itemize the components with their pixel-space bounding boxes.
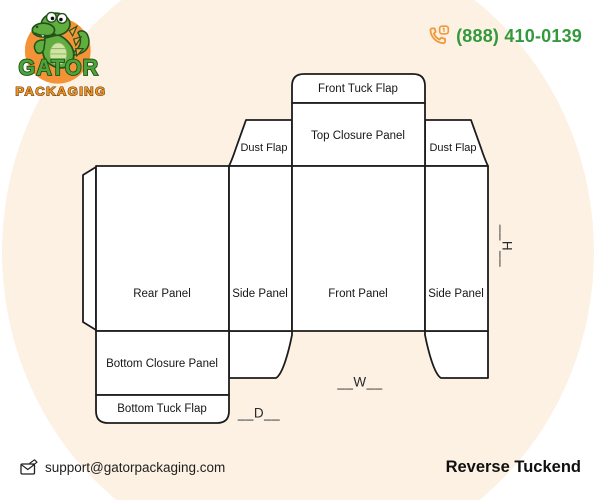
page: GATOR PACKAGING (888) 410-0139 [0,0,600,500]
dimension-height: __H__ [500,225,515,267]
label-bottom-tuck-flap: Bottom Tuck Flap [117,403,206,415]
support-email-text[interactable]: support@gatorpackaging.com [45,460,225,475]
label-dust-flap-left: Dust Flap [240,142,287,154]
label-front-tuck-flap: Front Tuck Flap [318,83,398,95]
panel-side-right [425,166,488,331]
dimension-width: __W__ [337,375,382,390]
label-side-panel-right: Side Panel [428,288,484,300]
label-rear-panel: Rear Panel [133,288,191,300]
label-dust-flap-right: Dust Flap [429,142,476,154]
panel-side-left [229,166,292,331]
label-front-panel: Front Panel [328,288,387,300]
panel-glue-flap [83,167,96,330]
label-top-closure-panel: Top Closure Panel [311,130,405,142]
support-email-link[interactable]: support@gatorpackaging.com [20,459,225,476]
email-icon [20,459,38,476]
dimension-depth: __D__ [238,406,280,421]
panel-rear [96,166,229,331]
panel-bottom-dust-flap-right [425,331,488,378]
panel-front [292,166,425,331]
label-bottom-closure-panel: Bottom Closure Panel [106,358,218,370]
label-side-panel-left: Side Panel [232,288,288,300]
panel-bottom-dust-flap-left [229,331,292,378]
dieline-title: Reverse Tuckend [446,458,581,477]
